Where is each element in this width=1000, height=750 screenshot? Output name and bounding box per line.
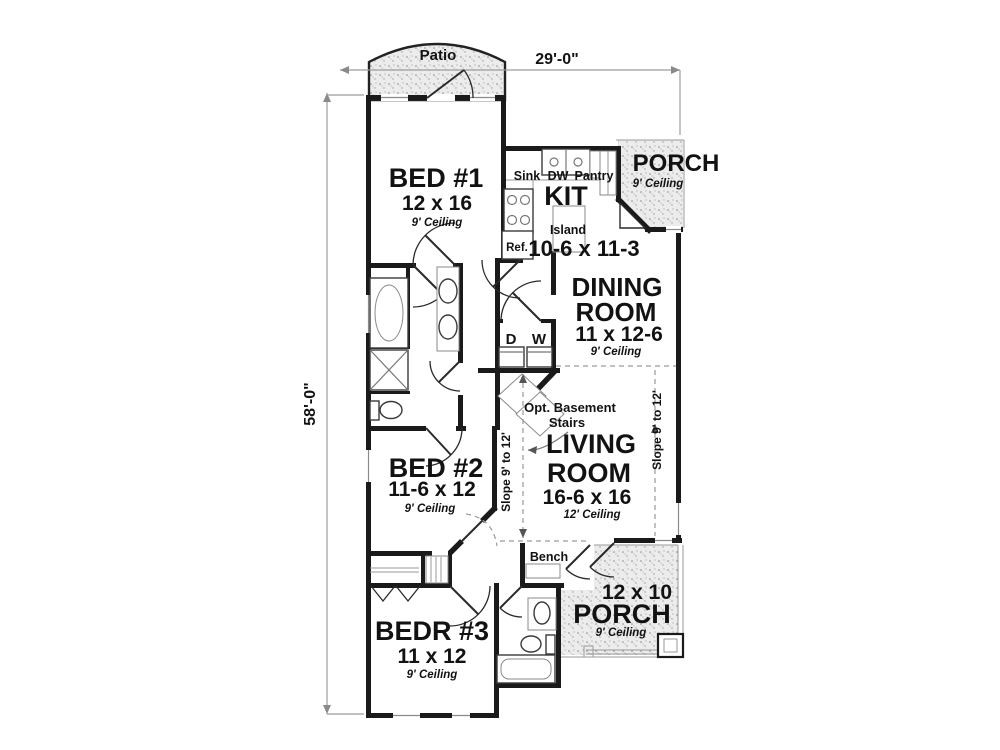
vanity-hallbath bbox=[528, 598, 556, 630]
bed2-diagonal-door bbox=[462, 514, 497, 546]
bench-label: Bench bbox=[530, 550, 568, 564]
bed1-size-label: 12 x 16 bbox=[402, 192, 472, 215]
bench-seat bbox=[526, 564, 560, 578]
porch-top-ceiling-label: 9' Ceiling bbox=[633, 178, 684, 190]
slope-right-label: Slope 9' to 12' bbox=[650, 390, 664, 470]
shower bbox=[370, 350, 408, 390]
dryer bbox=[499, 347, 524, 367]
living-ceiling-label: 12' Ceiling bbox=[563, 509, 620, 521]
dining-size-label: 11 x 12-6 bbox=[575, 323, 663, 346]
bed1-door bbox=[413, 223, 455, 265]
toilet-master bbox=[370, 401, 402, 420]
bed3-size-label: 11 x 12 bbox=[398, 645, 467, 668]
bed1-name-label: BED #1 bbox=[389, 163, 484, 193]
stairs-note-line2: Stairs bbox=[549, 415, 585, 430]
bed3-name-label: BEDR #3 bbox=[375, 616, 489, 646]
laundry-door bbox=[501, 281, 541, 321]
porch-top-name-label: PORCH bbox=[633, 150, 720, 177]
dryer-label: D bbox=[506, 331, 517, 348]
bath-inner-door bbox=[430, 361, 460, 391]
closet-bifold-doors bbox=[371, 586, 420, 601]
dim-width-label: 29'-0" bbox=[535, 51, 578, 68]
living-name1-label: LIVING bbox=[546, 429, 636, 459]
living-name2-label: ROOM bbox=[547, 458, 631, 488]
bathtub bbox=[370, 278, 408, 348]
dining-ceiling-label: 9' Ceiling bbox=[591, 346, 642, 358]
hall-kitchen-door bbox=[482, 260, 520, 298]
kitchen-size-label: 10-6 x 11-3 bbox=[528, 236, 639, 261]
porch-bottom-name-label: PORCH bbox=[573, 599, 671, 629]
vanity-sinks bbox=[437, 267, 459, 351]
porch-column bbox=[658, 634, 683, 657]
washer-label: W bbox=[532, 331, 547, 348]
kitchen-sink-label: Sink bbox=[514, 169, 540, 183]
porch-bottom-ceiling-label: 9' Ceiling bbox=[596, 627, 647, 639]
washer bbox=[527, 347, 552, 367]
toilet-hallbath bbox=[521, 635, 555, 654]
kitchen-name-label: KIT bbox=[544, 181, 588, 211]
patio-label: Patio bbox=[420, 47, 457, 64]
bathtub-hallbath bbox=[497, 655, 555, 683]
range bbox=[504, 189, 533, 233]
bed1-ceiling-label: 9' Ceiling bbox=[412, 217, 463, 229]
living-size-label: 16-6 x 16 bbox=[543, 486, 632, 509]
hallbath-door bbox=[500, 586, 522, 617]
kitchen-island-label: Island bbox=[550, 223, 586, 237]
kitchen-fridge-label: Ref. bbox=[506, 242, 528, 254]
closet-hatched bbox=[426, 556, 448, 583]
dim-height-label: 58'-0" bbox=[302, 382, 319, 425]
bed3-ceiling-label: 9' Ceiling bbox=[407, 669, 458, 681]
floor-plan-canvas: 29'-0" 58'-0" bbox=[0, 0, 1000, 750]
stairs-note-line1: Opt. Basement bbox=[524, 400, 616, 415]
closet-shelf bbox=[370, 568, 419, 572]
bed2-size-label: 11-6 x 12 bbox=[388, 478, 476, 501]
bench-porch-door bbox=[566, 545, 590, 579]
slope-left-label: Slope 9' to 12' bbox=[499, 432, 513, 512]
bed2-ceiling-label: 9' Ceiling bbox=[405, 503, 456, 515]
